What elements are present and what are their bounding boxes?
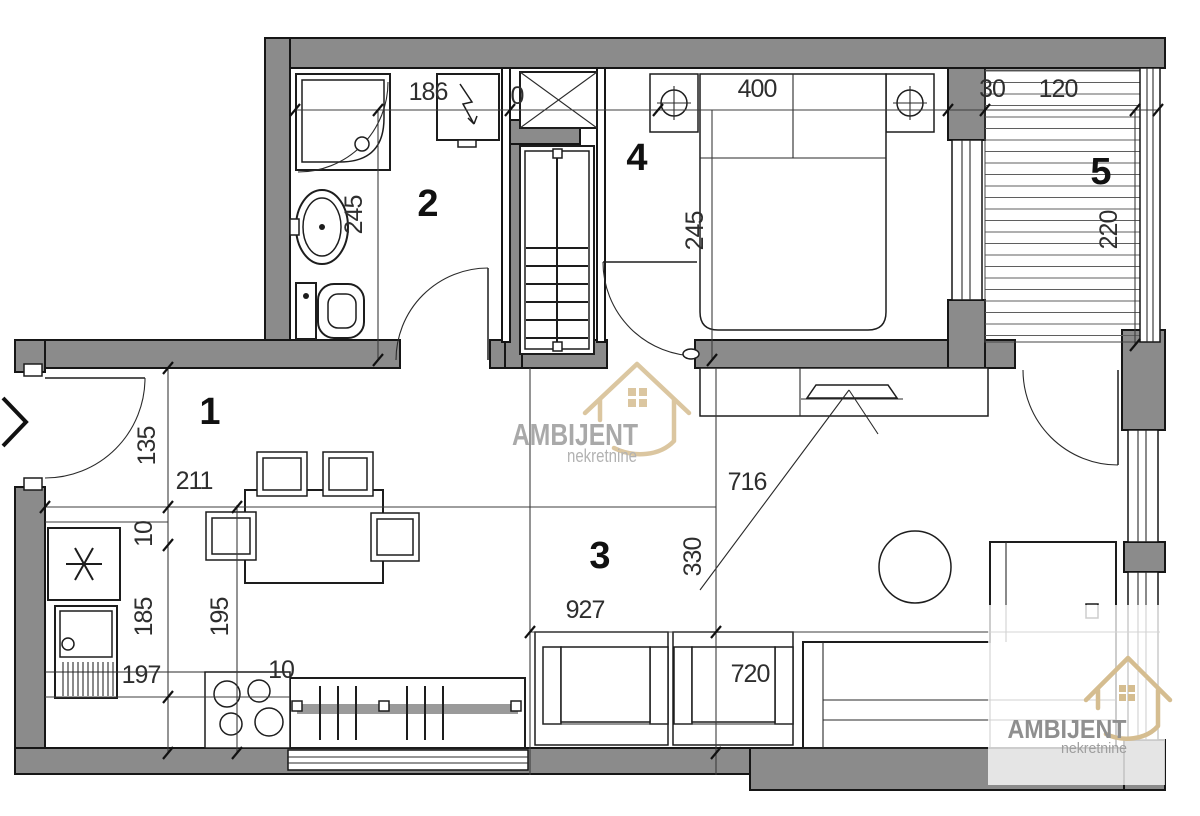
bathroom-door: [396, 268, 488, 360]
badge-subtitle: nekretnine: [1061, 740, 1127, 757]
dim-bed-width: 400: [738, 75, 777, 103]
entrance-arrow-icon: [3, 398, 26, 446]
burner: [220, 713, 242, 735]
floor-plan-page: 186 400 30 120 0 245 245 220 135 211 10 …: [0, 0, 1200, 816]
armchair-left: [535, 632, 668, 745]
dim-bath-depth: 245: [340, 196, 368, 235]
chair-top-right: [323, 452, 373, 496]
entrance-door: [24, 364, 145, 490]
badge-overlay: [988, 605, 1165, 785]
burner: [214, 681, 240, 707]
bedroom-furniture: [650, 74, 934, 330]
terrace-hatch: [985, 70, 1142, 342]
dining-table: [245, 490, 383, 583]
dim-stove-off: 10: [268, 656, 294, 684]
dim-terrace-width: 120: [1039, 75, 1078, 103]
dim-zero: 0: [511, 82, 524, 110]
dim-kitchen-len: 197: [122, 661, 161, 689]
dim-wall-thin: 10: [130, 521, 158, 547]
living-furniture: [206, 368, 1116, 748]
radiator: [290, 678, 525, 748]
dim-gap: 30: [979, 75, 1005, 103]
room-label-4: 4: [626, 137, 647, 179]
bed: [700, 74, 886, 330]
window-right-upper: [1128, 430, 1158, 542]
wall-left-lower: [15, 487, 45, 760]
dim-bath-width: 186: [409, 78, 448, 106]
pillar-right-upper: [1122, 330, 1165, 430]
watermark-subtitle: nekretnine: [567, 446, 637, 466]
watermark-badge: AMBIJENT nekretnine: [988, 605, 1170, 785]
wardrobe: [520, 72, 597, 128]
wall-bathroom-left: [265, 38, 290, 368]
room-label-3: 3: [589, 535, 610, 577]
dim-kitchen-width: 195: [206, 598, 234, 637]
tv-cabinet: [700, 368, 988, 416]
dim-kitchen-depth: 185: [130, 598, 158, 637]
oven-appliance: [55, 606, 117, 698]
dim-bed-depth: 245: [681, 212, 709, 251]
watermark-center: AMBIJENT nekretnine: [512, 364, 689, 466]
wall-top: [265, 38, 1165, 68]
tv-icon: [807, 385, 897, 398]
dim-living-depth: 330: [679, 538, 707, 577]
terrace-floor: [985, 70, 1142, 342]
pillar-terrace-bottom: [948, 300, 985, 368]
terrace-railing: [1140, 68, 1160, 342]
wall-bathroom-right: [502, 68, 510, 342]
chair-top-left: [257, 452, 307, 496]
bedroom-door: [603, 262, 699, 359]
stairs-post-top: [553, 149, 562, 158]
window-bottom: [288, 750, 528, 770]
toilet: [296, 283, 364, 339]
burner: [255, 708, 283, 736]
chair-left: [206, 512, 256, 560]
window-terrace-divider: [952, 140, 982, 300]
round-table: [879, 531, 951, 603]
fridge: [48, 528, 120, 600]
stairs-post-bottom: [553, 342, 562, 351]
dim-hall-door: 135: [133, 427, 161, 466]
staircase: [520, 146, 594, 354]
room-label-1: 1: [199, 391, 220, 433]
dim-terrace-depth: 220: [1095, 211, 1123, 250]
armchair-right: [673, 632, 793, 745]
dim-living-len: 927: [566, 596, 605, 624]
dim-living-width: 716: [728, 468, 767, 496]
room-label-2: 2: [417, 183, 438, 225]
room-label-5: 5: [1090, 151, 1111, 193]
dim-sofa-wall: 720: [731, 660, 770, 688]
dim-hall-width: 211: [176, 467, 213, 495]
chair-right: [371, 513, 419, 561]
balcony-door: [1023, 370, 1118, 465]
pillar-right-mid: [1124, 542, 1165, 572]
shower: [296, 74, 390, 172]
wall-stairs-right: [597, 68, 605, 342]
burner: [248, 680, 270, 702]
wall-mid-left: [15, 340, 400, 368]
door-stop: [683, 349, 699, 359]
floor-plan-drawing: 186 400 30 120 0 245 245 220 135 211 10 …: [0, 0, 1200, 816]
